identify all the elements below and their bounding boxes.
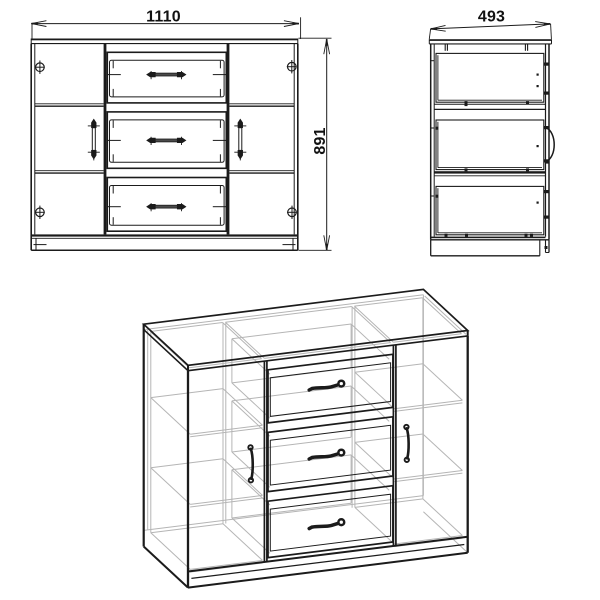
svg-text:493: 493 bbox=[478, 9, 505, 26]
svg-text:1110: 1110 bbox=[146, 8, 181, 25]
svg-text:891: 891 bbox=[312, 127, 329, 154]
